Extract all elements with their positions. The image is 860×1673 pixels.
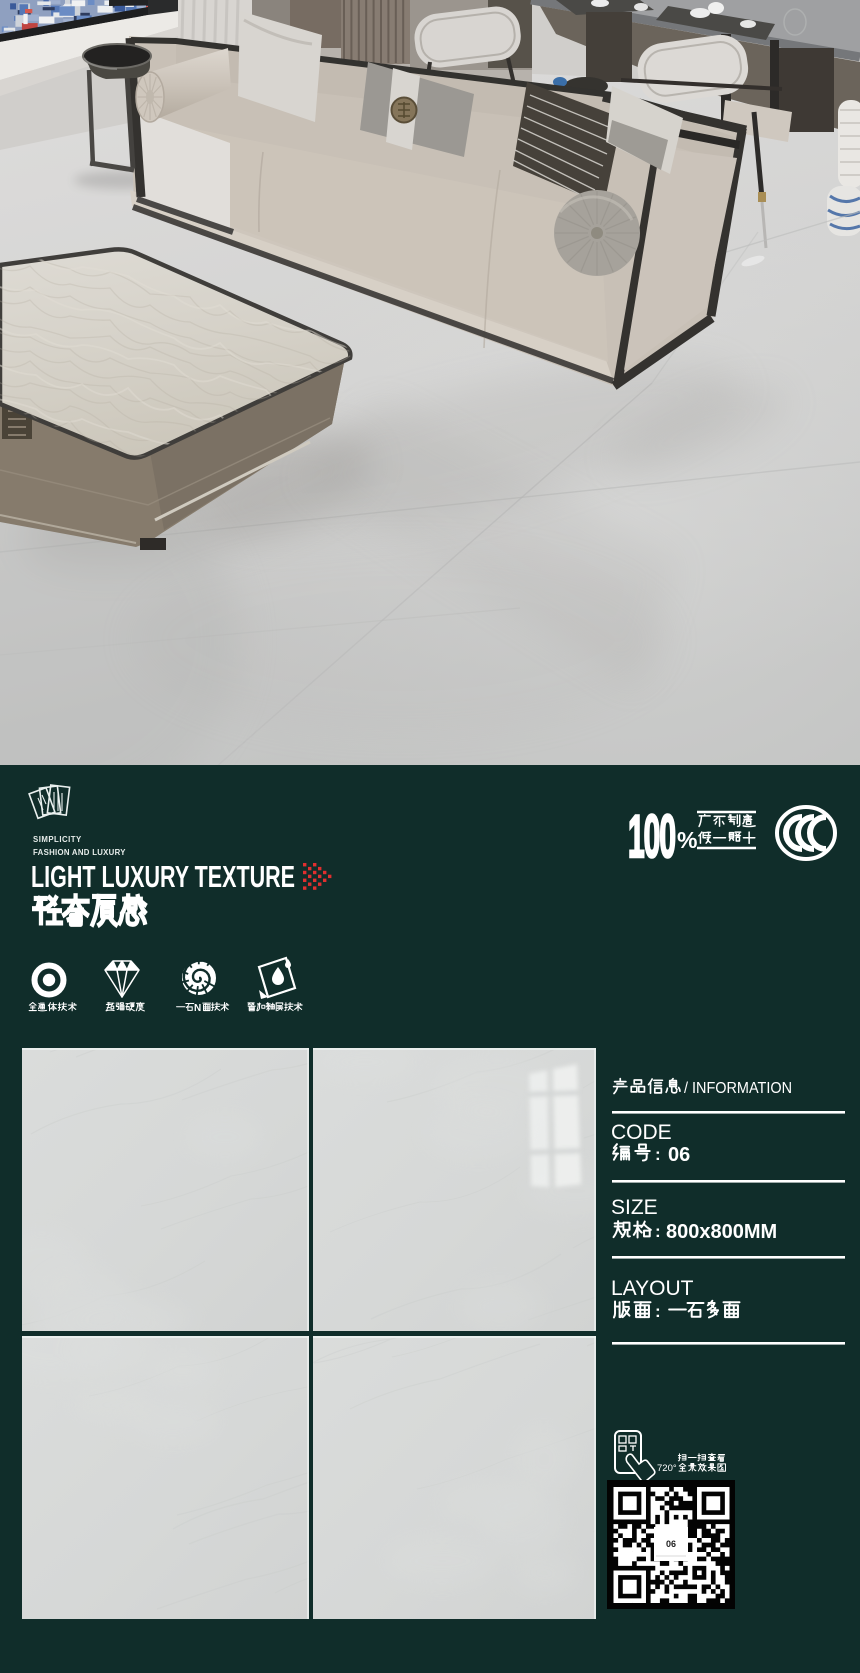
svg-text:06: 06: [668, 1144, 690, 1166]
svg-text:/ INFORMATION: / INFORMATION: [684, 1080, 792, 1097]
svg-text:800x800MM: 800x800MM: [666, 1221, 777, 1243]
svg-text:100: 100: [628, 804, 675, 871]
svg-text:LIGHT LUXURY TEXTURE: LIGHT LUXURY TEXTURE: [31, 859, 295, 894]
svg-text:SIMPLICITY: SIMPLICITY: [33, 835, 82, 844]
svg-text::: :: [655, 1302, 661, 1321]
svg-text:06: 06: [666, 1539, 676, 1549]
svg-text:N: N: [194, 1003, 201, 1014]
svg-text::: :: [655, 1222, 661, 1241]
svg-text:LAYOUT: LAYOUT: [611, 1277, 694, 1300]
svg-text:CODE: CODE: [611, 1121, 672, 1144]
svg-text::: :: [655, 1145, 661, 1164]
svg-text:%: %: [677, 827, 697, 853]
svg-text:720°: 720°: [657, 1463, 677, 1474]
svg-text:SIZE: SIZE: [611, 1196, 658, 1219]
svg-text:FASHION AND LUXURY: FASHION AND LUXURY: [33, 848, 126, 857]
